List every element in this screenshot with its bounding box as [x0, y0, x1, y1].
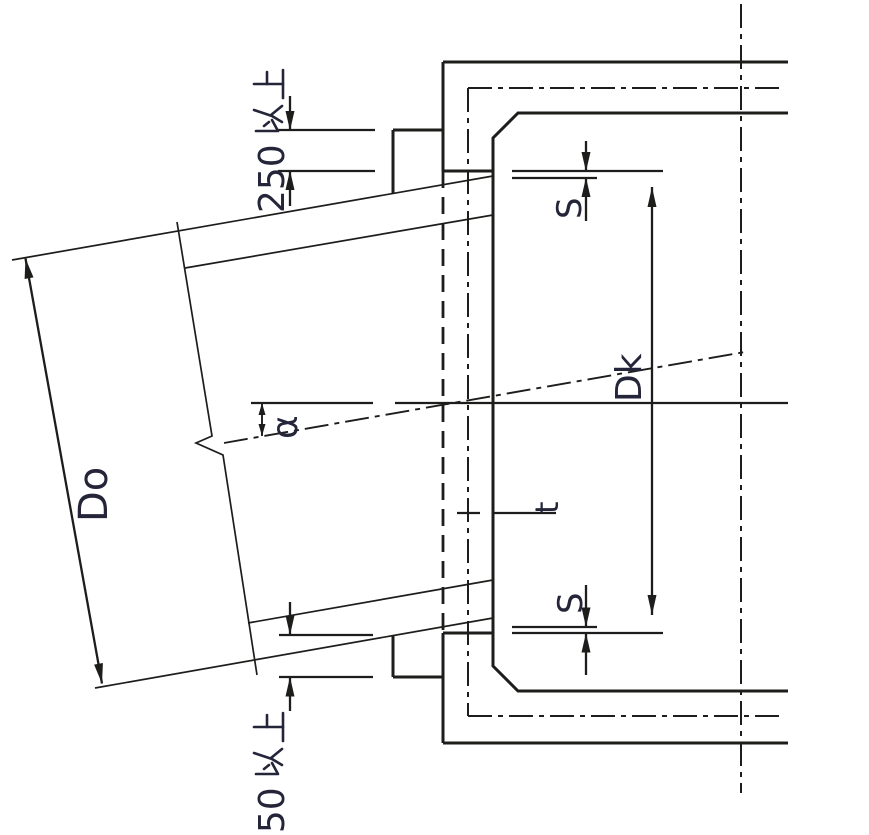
dimension-alpha: α [259, 403, 307, 439]
kanji-jou [254, 713, 283, 741]
kanji-i [254, 749, 282, 774]
dimension-250-bottom: 250 [252, 602, 373, 835]
kanji-jou [254, 70, 283, 98]
kanji-i [254, 106, 282, 131]
embed-bottom-label: 250 [252, 787, 293, 835]
dimension-do: Do [25, 259, 117, 684]
collar-top [393, 130, 443, 194]
s-bottom-label: S [551, 592, 591, 614]
dk-label: Dk [609, 353, 650, 402]
dimension-s-bottom: S [512, 585, 663, 675]
dimension-t: t [457, 501, 566, 514]
pipe-break-line [177, 222, 257, 675]
pipe-outline [12, 176, 493, 688]
embed-top-label: 250 [252, 144, 293, 213]
do-label: Do [71, 467, 117, 522]
s-top-label: S [550, 197, 590, 219]
t-label: t [528, 501, 566, 514]
dimension-dk: Dk [609, 187, 657, 615]
manhole-pipe-connection-diagram: Do Dk S S 250 [0, 0, 869, 835]
collar-bottom [393, 635, 443, 677]
dimension-s-top: S [512, 141, 663, 221]
technical-drawing-canvas: Do Dk S S 250 [0, 0, 869, 835]
alpha-label: α [265, 415, 306, 439]
dimension-250-top: 250 [252, 70, 375, 213]
